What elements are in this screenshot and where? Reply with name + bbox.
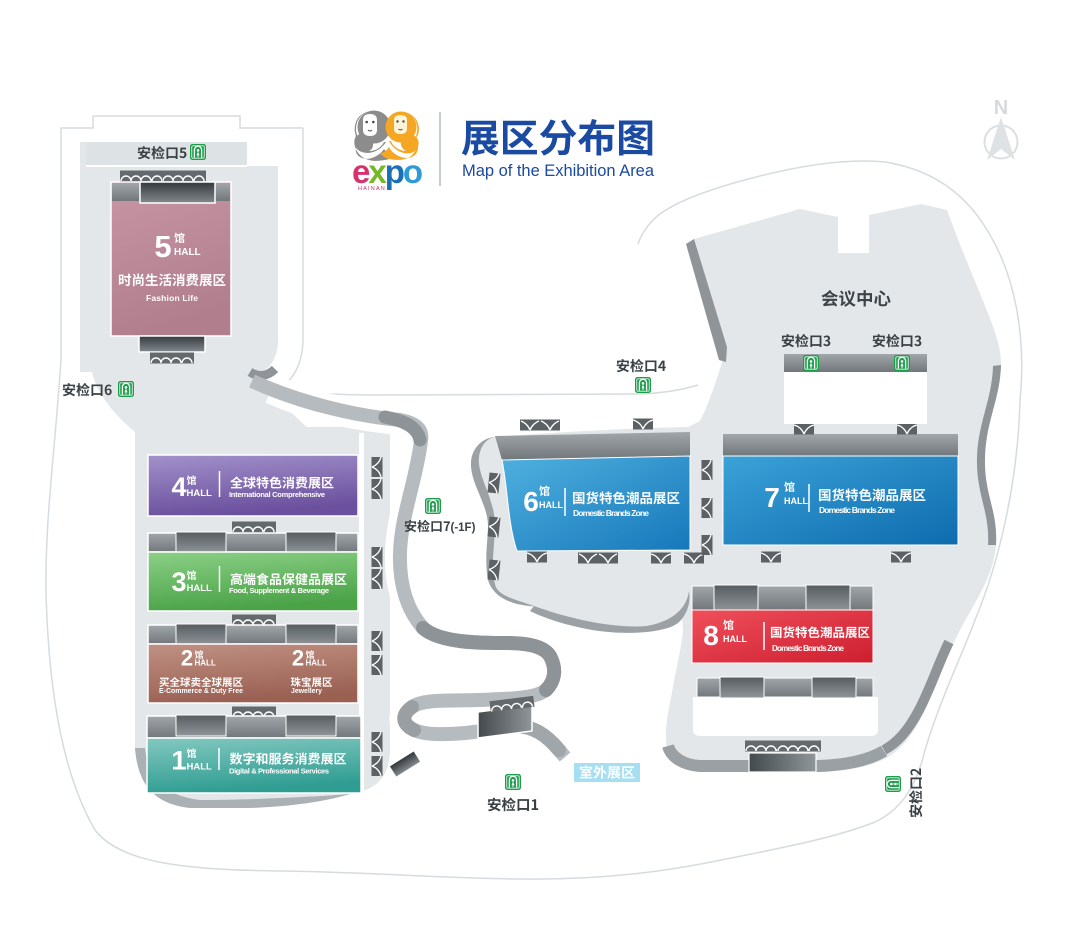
svg-text:Domestic Brands Zone: Domestic Brands Zone xyxy=(573,508,649,518)
svg-text:HALL: HALL xyxy=(174,247,201,258)
svg-text:E-Commerce & Duty Free: E-Commerce & Duty Free xyxy=(159,688,243,695)
svg-text:HALL: HALL xyxy=(187,488,213,499)
svg-text:International Comprehensive: International Comprehensive xyxy=(229,490,325,499)
svg-text:5: 5 xyxy=(154,229,171,264)
svg-text:N: N xyxy=(994,97,1008,119)
svg-text:Digital & Professional Service: Digital & Professional Services xyxy=(229,767,329,776)
svg-text:HALL: HALL xyxy=(784,496,808,506)
svg-text:HALL: HALL xyxy=(187,762,213,773)
svg-text:HALL: HALL xyxy=(723,634,747,644)
svg-text:Map of the Exhibition Area: Map of the Exhibition Area xyxy=(462,162,655,180)
svg-text:Jewellery: Jewellery xyxy=(291,688,322,695)
svg-text:2: 2 xyxy=(292,646,304,671)
svg-text:HALL: HALL xyxy=(187,583,213,594)
svg-text:6: 6 xyxy=(523,486,539,517)
svg-text:HAINAN: HAINAN xyxy=(358,186,386,192)
svg-text:(-1F): (-1F) xyxy=(451,522,476,534)
svg-text:2: 2 xyxy=(181,646,193,671)
svg-text:HALL: HALL xyxy=(539,500,563,510)
svg-text:7: 7 xyxy=(764,482,780,513)
svg-text:expo: expo xyxy=(352,153,422,190)
svg-text:3: 3 xyxy=(171,567,186,597)
svg-text:HALL: HALL xyxy=(195,659,216,668)
svg-text:HALL: HALL xyxy=(306,659,327,668)
svg-text:Domestic Brands Zone: Domestic Brands Zone xyxy=(772,644,845,653)
svg-text:Fashion Life: Fashion Life xyxy=(146,293,198,303)
svg-text:Food, Supplement & Beverage: Food, Supplement & Beverage xyxy=(229,586,329,595)
svg-text:4: 4 xyxy=(171,472,186,502)
svg-text:1: 1 xyxy=(171,746,186,776)
svg-text:8: 8 xyxy=(703,620,719,651)
svg-text:Domestic Brands Zone: Domestic Brands Zone xyxy=(819,505,895,515)
